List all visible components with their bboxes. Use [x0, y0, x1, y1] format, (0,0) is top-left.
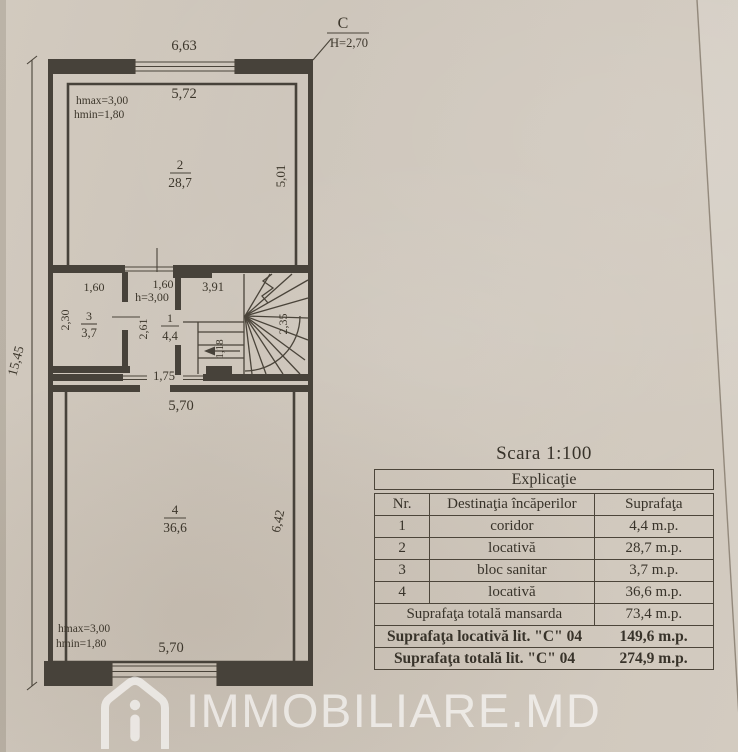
row-nr: 2: [375, 538, 430, 560]
room3-height: 2,30: [58, 310, 72, 331]
room2-width: 5,72: [171, 86, 196, 102]
watermark-text: IMMOBILIARE.MD: [186, 687, 601, 734]
table-row: 3 bloc sanitar 3,7 m.p.: [375, 560, 714, 582]
room2-hmin: hmin=1,80: [74, 109, 125, 121]
building-letter: C: [338, 15, 349, 32]
row-nr: 4: [375, 582, 430, 604]
row-destination: bloc sanitar: [430, 560, 594, 582]
row-area: 4,4 m.p.: [594, 516, 713, 538]
row-nr: 3: [375, 560, 430, 582]
watermark-house-icon: [96, 671, 174, 749]
building-letter-callout: C H=2,70: [313, 15, 369, 60]
summary-label: Suprafaţa totală mansarda: [375, 604, 595, 626]
stairs-flight-width: 1,18: [214, 339, 226, 359]
summary-label: Suprafaţa locativă lit. "C" 04: [375, 626, 595, 648]
col-header-area: Suprafaţa: [594, 494, 713, 516]
row-area: 36,6 m.p.: [594, 582, 713, 604]
room3-area: 3,7: [81, 326, 97, 340]
room3-width: 1,60: [84, 280, 105, 294]
room4-width-bottom: 5,70: [158, 640, 183, 656]
watermark: IMMOBILIARE.MD: [96, 671, 601, 749]
stairs-height: 2,35: [276, 314, 290, 335]
paper-edge-shadow: [0, 0, 6, 752]
window-top: [135, 59, 235, 74]
summary-row-locativa: Suprafaţa locativă lit. "C" 04 149,6 m.p…: [375, 626, 714, 648]
col-header-nr: Nr.: [375, 494, 430, 516]
row-area: 3,7 m.p.: [594, 560, 713, 582]
walls: [44, 59, 313, 686]
row-nr: 1: [375, 516, 430, 538]
table-row: 2 locativă 28,7 m.p.: [375, 538, 714, 560]
left-dimension-line: [27, 56, 37, 690]
table-header-row: Nr. Destinaţia încăperilor Suprafaţa: [375, 494, 714, 516]
summary-row-mansarda: Suprafaţa totală mansarda 73,4 m.p.: [375, 604, 714, 626]
scanned-floorplan-photo: C H=2,70 6,63 15,45 hmax=3,00 hmin=1,80 …: [0, 0, 738, 752]
building-height-note: H=2,70: [330, 36, 368, 50]
corridor-depth: 2,61: [136, 319, 150, 340]
corridor-height-note: h=3,00: [135, 290, 169, 304]
summary-area: 149,6 m.p.: [594, 626, 713, 648]
row-area: 28,7 m.p.: [594, 538, 713, 560]
explication-panel: Scara 1:100 Explicaţie Nr. Destinaţia în…: [374, 443, 714, 670]
i-dot: [130, 700, 140, 710]
summary-label: Suprafaţa totală lit. "C" 04: [375, 648, 595, 670]
i-stem: [130, 715, 139, 742]
corridor-width: 1,60: [153, 277, 174, 291]
scale-label: Scara 1:100: [374, 443, 714, 465]
explication-table: Nr. Destinaţia încăperilor Suprafaţa 1 c…: [374, 493, 714, 670]
room4-hmin: hmin=1,80: [56, 638, 107, 650]
row-destination: locativă: [430, 538, 594, 560]
summary-row-totala: Suprafaţa totală lit. "C" 04 274,9 m.p.: [375, 648, 714, 670]
col-header-destination: Destinaţia încăperilor: [430, 494, 594, 516]
row-destination: locativă: [430, 582, 594, 604]
room2-hmax: hmax=3,00: [76, 95, 128, 107]
corridor-number: 1: [167, 311, 173, 325]
room3-number: 3: [86, 309, 92, 323]
stairs-width: 3,91: [202, 280, 224, 294]
summary-area: 274,9 m.p.: [594, 648, 713, 670]
room4-width-top: 5,70: [168, 398, 193, 414]
room2-height: 5,01: [273, 165, 288, 188]
summary-area: 73,4 m.p.: [594, 604, 713, 626]
room4-hmax: hmax=3,00: [58, 623, 110, 635]
table-row: 1 coridor 4,4 m.p.: [375, 516, 714, 538]
room2-number: 2: [177, 157, 184, 172]
row-destination: coridor: [430, 516, 594, 538]
table-title: Explicaţie: [374, 469, 714, 490]
corridor-area: 4,4: [162, 329, 178, 343]
dim-top-width: 6,63: [171, 38, 196, 54]
room4-height: 6,42: [268, 508, 287, 533]
room4-area: 36,6: [163, 520, 187, 535]
table-row: 4 locativă 36,6 m.p.: [375, 582, 714, 604]
room4-number: 4: [172, 502, 179, 517]
dim-left-height: 15,45: [4, 344, 26, 377]
corridor-opening: 1,75: [153, 369, 175, 383]
room2-area: 28,7: [168, 175, 192, 190]
